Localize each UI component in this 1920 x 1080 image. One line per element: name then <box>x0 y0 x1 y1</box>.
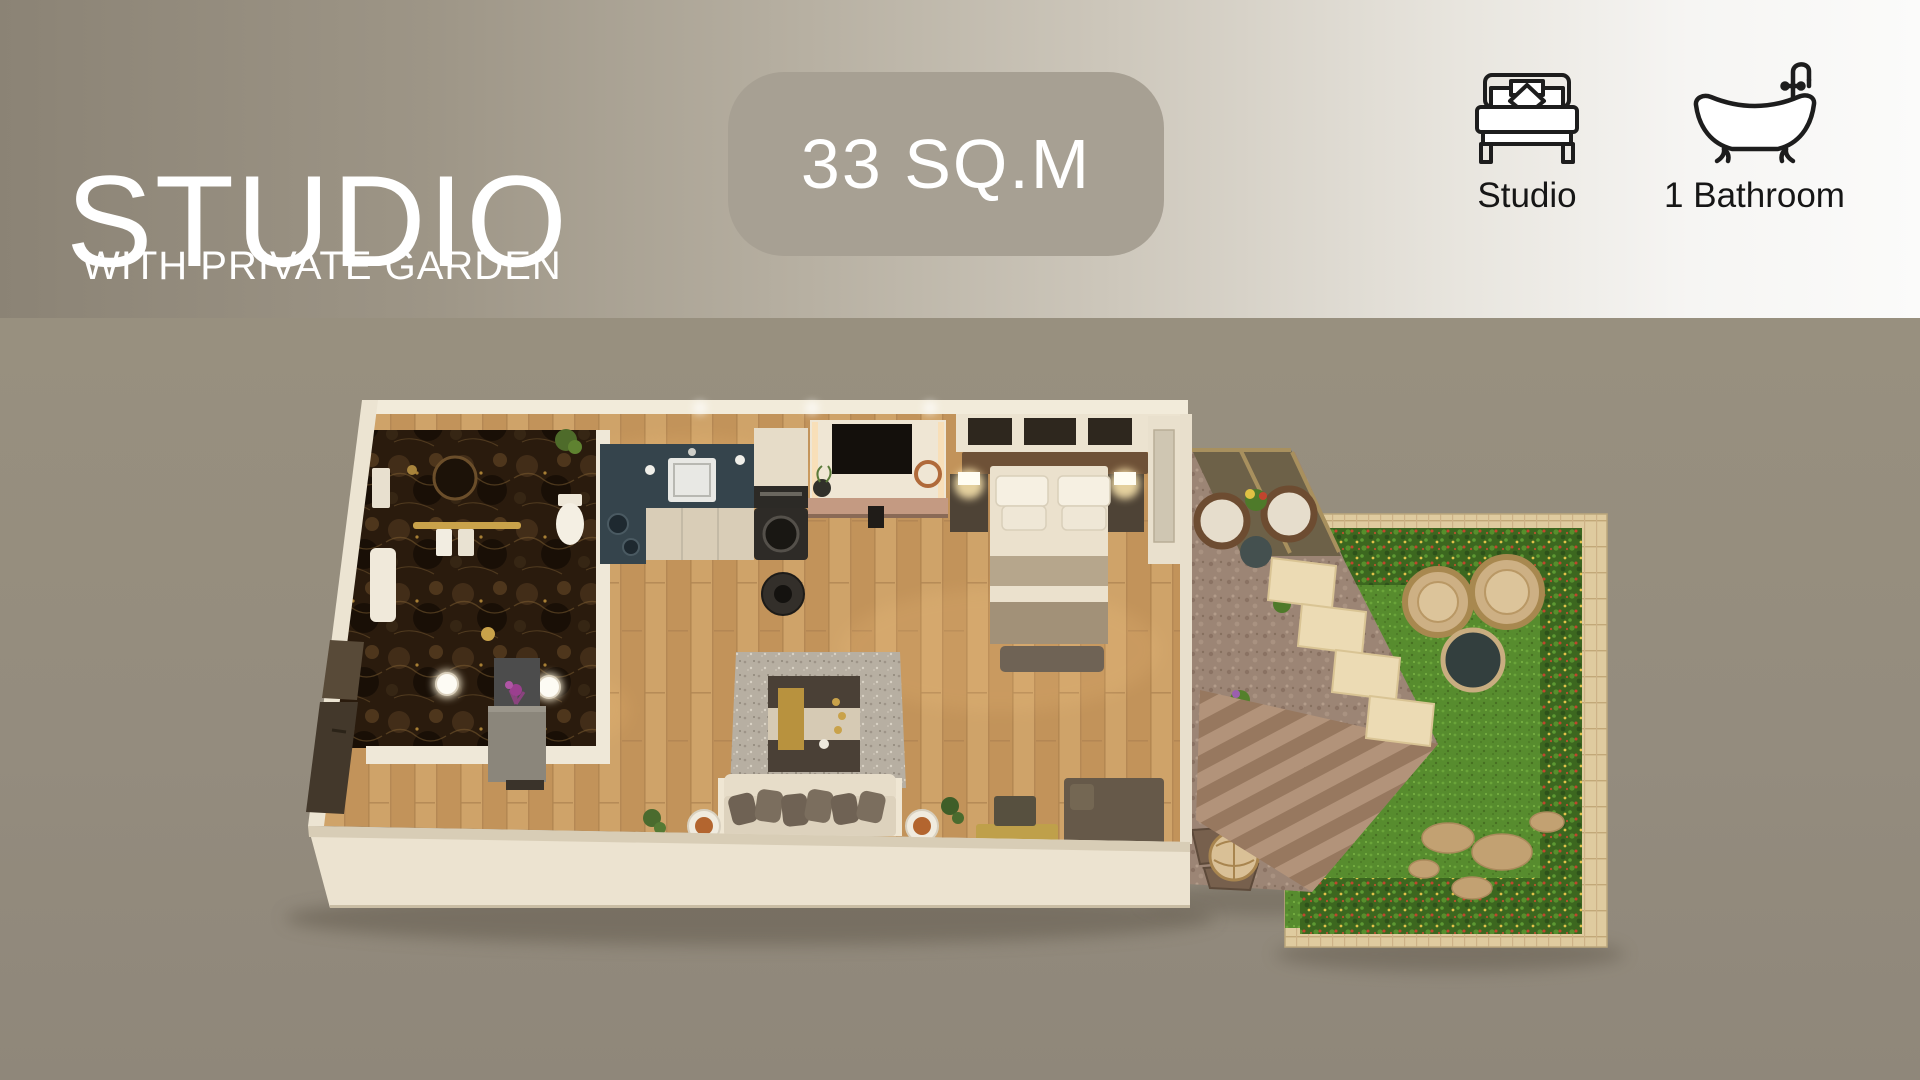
entry-door <box>322 640 364 700</box>
table-lamp <box>1114 472 1136 485</box>
tall-cabinet <box>754 428 808 486</box>
toilet <box>556 503 584 545</box>
apartment <box>306 400 1192 908</box>
poster-canvas: STUDIO WITH PRIVATE GARDEN 33 SQ.M Studi… <box>0 0 1920 1080</box>
cooktop-pot <box>608 514 628 534</box>
sofa <box>718 774 902 836</box>
tv-wall <box>808 420 948 528</box>
bed-icon <box>1467 72 1587 166</box>
terrace-chair <box>1264 489 1314 539</box>
stone-basin <box>434 457 476 499</box>
oven <box>754 486 808 508</box>
tv-screen <box>832 424 912 474</box>
area-badge-text: 33 SQ.M <box>801 124 1091 204</box>
page-subtitle: WITH PRIVATE GARDEN <box>82 244 562 289</box>
feature-studio: Studio <box>1452 56 1602 216</box>
bathtub-icon <box>1690 56 1820 166</box>
fire-pit <box>1443 630 1503 690</box>
table-lamp <box>958 472 980 485</box>
bathtub <box>370 548 396 622</box>
speaker <box>868 506 884 528</box>
terrace-table <box>1240 536 1272 568</box>
cooktop-pot <box>623 539 639 555</box>
bed-bench <box>1000 646 1104 672</box>
gold-towel-bar <box>413 522 521 529</box>
floor-plan-area <box>0 318 1920 1080</box>
wall-sconce <box>436 673 458 695</box>
right-wall <box>1180 414 1192 844</box>
feature-studio-label: Studio <box>1452 176 1602 216</box>
top-wall <box>362 400 1188 414</box>
feature-bathroom: 1 Bathroom <box>1662 56 1847 216</box>
bathroom <box>326 429 610 748</box>
floor-plan-render <box>0 318 1920 1080</box>
feature-bathroom-label: 1 Bathroom <box>1662 176 1847 216</box>
terrace-chair <box>1197 496 1247 546</box>
wall-sconce <box>538 676 560 698</box>
area-badge: 33 SQ.M <box>728 72 1164 256</box>
header-band: STUDIO WITH PRIVATE GARDEN 33 SQ.M Studi… <box>0 0 1920 318</box>
console-table <box>488 706 546 782</box>
kitchen-cabinets <box>646 508 754 560</box>
